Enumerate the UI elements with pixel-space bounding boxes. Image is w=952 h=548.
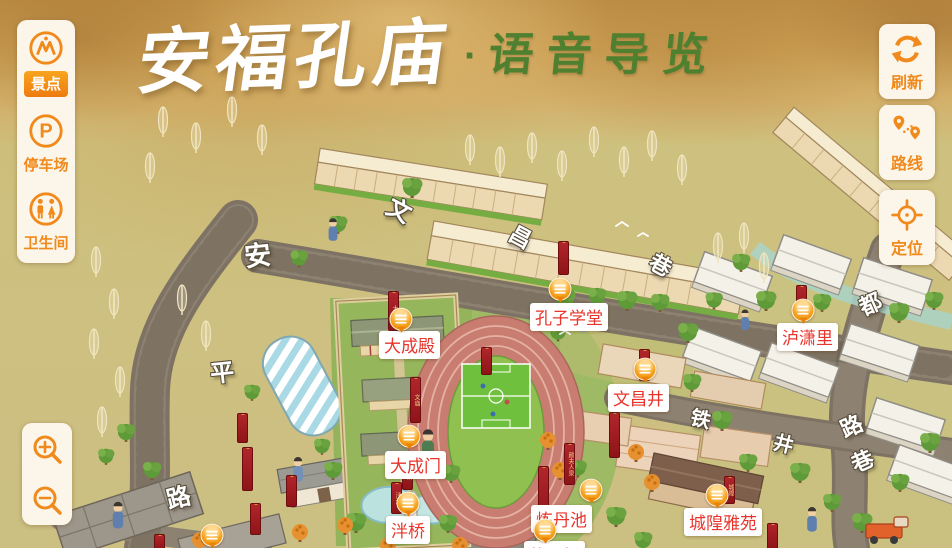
sidebar-item-label: 停车场 xyxy=(23,154,68,175)
zoom-out-button[interactable] xyxy=(27,480,67,520)
audio-point-marker[interactable] xyxy=(201,524,224,547)
audio-bars-icon xyxy=(555,285,566,294)
audio-bars-icon xyxy=(403,499,414,508)
refresh-label: 刷新 xyxy=(891,69,923,93)
red-banner xyxy=(237,413,248,443)
restroom-icon xyxy=(27,190,65,228)
audio-point-marker[interactable] xyxy=(580,479,603,502)
red-banner: 颜夫人泉 xyxy=(564,443,575,485)
red-banner xyxy=(767,523,778,548)
locate-label: 定位 xyxy=(891,235,923,259)
audio-point-marker[interactable] xyxy=(397,492,420,515)
sidebar-item-scenic-spots[interactable]: 景点 xyxy=(24,29,68,97)
audio-bars-icon xyxy=(396,315,407,324)
red-banner xyxy=(609,412,620,458)
left-toolbar: 景点 P 停车场 卫生间 xyxy=(17,20,75,263)
zoom-in-icon xyxy=(27,429,67,469)
refresh-icon xyxy=(889,31,925,67)
audio-point-marker[interactable] xyxy=(706,484,729,507)
audio-point-marker[interactable] xyxy=(549,278,572,301)
svg-text:P: P xyxy=(39,121,52,143)
poi-label[interactable]: 城隍雅苑 xyxy=(684,508,762,536)
audio-point-marker[interactable] xyxy=(534,519,557,542)
red-banner xyxy=(154,534,165,548)
route-icon xyxy=(889,112,925,148)
scenic-spots-icon xyxy=(27,29,65,67)
red-banner xyxy=(242,447,253,491)
poi-label[interactable]: 状元桥 xyxy=(524,541,585,548)
sidebar-item-parking[interactable]: P 停车场 xyxy=(23,112,68,175)
audio-point-marker[interactable] xyxy=(792,299,815,322)
voice-guide-map-app: 大成文庙文昌泮桥泮池颜夫人泉城隍 安平路文昌巷铁井都路巷 大成殿孔子学堂泸潇里文… xyxy=(0,0,952,548)
locate-icon xyxy=(889,197,925,233)
audio-point-marker[interactable] xyxy=(390,308,413,331)
poi-label[interactable]: 大成门 xyxy=(385,451,446,479)
audio-point-marker[interactable] xyxy=(634,358,657,381)
red-banner xyxy=(286,475,297,507)
audio-bars-icon xyxy=(540,526,551,535)
refresh-button[interactable]: 刷新 xyxy=(879,24,935,99)
poi-label[interactable]: 大成殿 xyxy=(379,331,440,359)
red-banner xyxy=(250,503,261,535)
poi-label[interactable]: 孔子学堂 xyxy=(530,303,608,331)
poi-label[interactable]: 泸潇里 xyxy=(777,323,838,351)
audio-bars-icon xyxy=(712,491,723,500)
sidebar-item-label: 卫生间 xyxy=(23,232,68,253)
sidebar-item-restroom[interactable]: 卫生间 xyxy=(23,190,68,253)
route-label: 路线 xyxy=(891,150,923,174)
parking-icon: P xyxy=(27,112,65,150)
zoom-controls xyxy=(22,423,72,525)
audio-bars-icon xyxy=(586,486,597,495)
red-banner: 文庙 xyxy=(410,377,421,423)
poi-label[interactable]: 文昌井 xyxy=(608,384,669,412)
sidebar-item-label: 景点 xyxy=(24,71,68,97)
audio-bars-icon xyxy=(798,306,809,315)
audio-bars-icon xyxy=(207,531,218,540)
red-banner xyxy=(558,241,569,275)
audio-point-marker[interactable] xyxy=(398,425,421,448)
locate-button[interactable]: 定位 xyxy=(879,190,935,265)
route-button[interactable]: 路线 xyxy=(879,105,935,180)
audio-bars-icon xyxy=(404,432,415,441)
red-banner xyxy=(481,347,492,375)
zoom-out-icon xyxy=(27,480,67,520)
audio-bars-icon xyxy=(640,365,651,374)
map-illustration xyxy=(0,0,952,548)
zoom-in-button[interactable] xyxy=(27,429,67,469)
